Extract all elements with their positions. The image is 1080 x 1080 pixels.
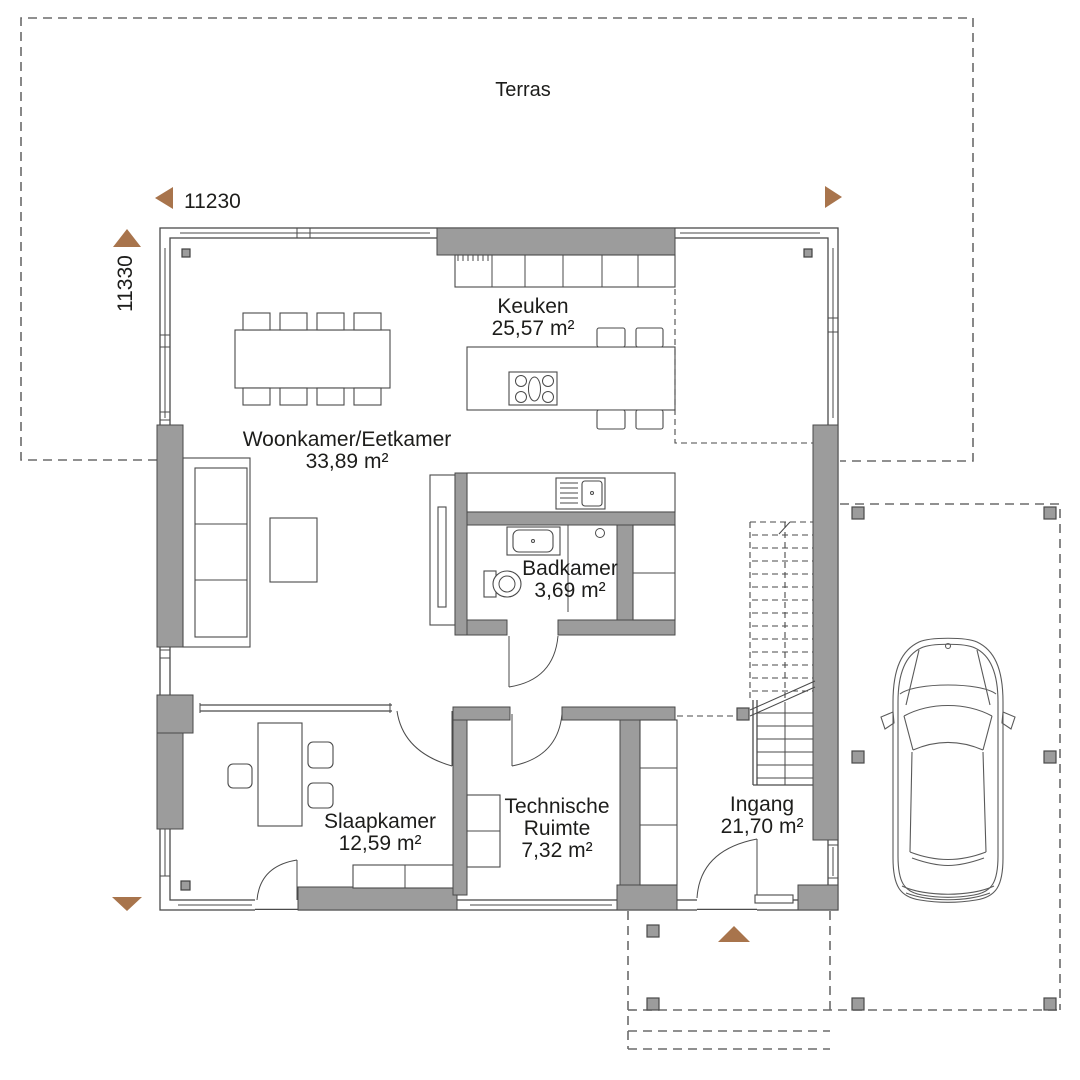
terrace-label: Terras <box>495 79 551 101</box>
staircase-lower-flight <box>750 681 815 785</box>
bathroom-door <box>509 636 558 687</box>
room-area-badkamer: 3,69 m² <box>534 579 605 602</box>
carport-outline <box>628 504 1060 1010</box>
entry-hall <box>697 522 815 903</box>
staircase-upper-flight-dashed <box>750 522 813 700</box>
coffee-table <box>270 518 317 582</box>
dimension-width-label: 11230 <box>184 190 241 213</box>
room-label-slaapkamer: Slaapkamer <box>324 810 436 833</box>
room-label-keuken: Keuken <box>497 295 568 318</box>
room-label-technische-2: Ruimte <box>524 817 591 840</box>
tv-cabinet <box>430 475 455 625</box>
posts <box>647 507 1056 1010</box>
car <box>881 638 1015 902</box>
tech-cabinet <box>467 795 500 867</box>
cooktop <box>509 372 557 405</box>
room-area-technische: 7,32 m² <box>521 839 592 862</box>
height-arrow-down-icon <box>112 897 142 911</box>
bedroom-desk <box>258 723 302 826</box>
sofa <box>183 458 250 647</box>
kitchen-dashed-boundary <box>675 289 813 443</box>
bathroom-vanity <box>507 527 560 555</box>
living-dining <box>183 313 455 647</box>
front-door-sidelight <box>755 895 793 903</box>
bedroom-door <box>397 711 452 766</box>
room-area-slaapkamer: 12,59 m² <box>339 832 422 855</box>
room-label-technische-1: Technische <box>504 795 609 818</box>
room-label-ingang: Ingang <box>730 793 794 816</box>
room-label-woonkamer: Woonkamer/Eetkamer <box>243 428 452 451</box>
kitchen <box>455 255 813 512</box>
kitchen-sink <box>556 478 605 509</box>
floor-plan: Terras 11230 11330 Keuken 25,57 m² Woonk… <box>0 0 1080 1080</box>
bathroom-cabinet <box>633 525 675 620</box>
sideboard <box>353 865 457 888</box>
room-label-badkamer: Badkamer <box>522 557 618 580</box>
width-arrow-left-icon <box>155 187 173 209</box>
toilet <box>484 571 521 597</box>
kitchen-island <box>467 347 675 410</box>
dimension-height-label: 11330 <box>114 255 137 312</box>
height-arrow-up-icon <box>113 229 141 247</box>
room-area-woonkamer: 33,89 m² <box>306 450 389 473</box>
width-arrow-right-icon <box>825 186 842 208</box>
tech-room-door <box>512 714 562 766</box>
hall-wardrobe <box>640 720 677 885</box>
entrance-marker-icon <box>718 926 750 942</box>
dining-table <box>235 330 390 388</box>
car-mirror-left <box>881 712 894 729</box>
car-mirror-right <box>1002 712 1015 729</box>
bedroom <box>200 703 457 900</box>
room-area-keuken: 25,57 m² <box>492 317 575 340</box>
room-area-ingang: 21,70 m² <box>721 815 804 838</box>
